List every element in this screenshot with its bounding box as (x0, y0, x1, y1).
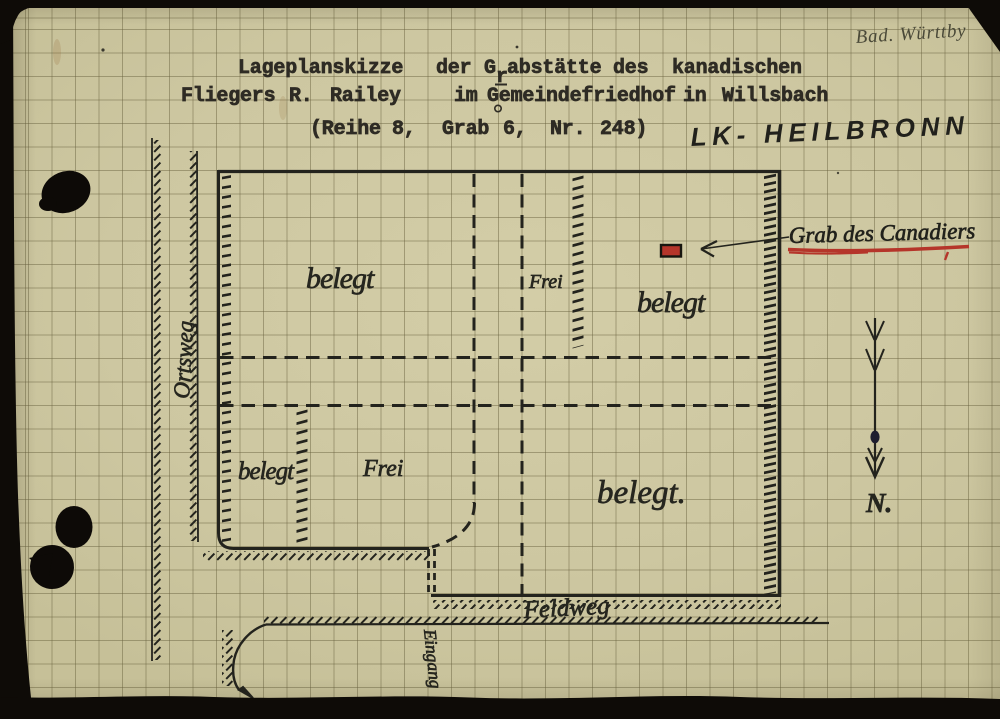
svg-text:Frei: Frei (362, 456, 403, 482)
svg-text:belegt: belegt (637, 286, 706, 319)
svg-text:LK- HEILBRONN: LK- HEILBRONN (690, 110, 970, 152)
svg-text:G: G (484, 57, 496, 80)
svg-text:Bad. Württby: Bad. Württby (855, 20, 967, 48)
svg-text:Grab des Canadiers: Grab des Canadiers (788, 218, 975, 248)
svg-text:Gemeindefriedhof: Gemeindefriedhof (487, 85, 676, 108)
svg-text:R.: R. (289, 85, 313, 108)
svg-text:belegt: belegt (238, 458, 295, 485)
svg-text:Lageplanskizze: Lageplanskizze (238, 57, 403, 80)
svg-text:belegt.: belegt. (597, 475, 686, 511)
svg-text:Willsbach: Willsbach (722, 85, 828, 108)
svg-text:(Reihe: (Reihe (310, 118, 381, 141)
svg-text:Ortsweg: Ortsweg (169, 320, 198, 399)
svg-text:6,: 6, (503, 118, 527, 141)
svg-text:des: des (613, 57, 648, 80)
svg-text:N.: N. (865, 488, 892, 518)
svg-text:abstätte: abstätte (507, 57, 602, 80)
svg-text:der: der (436, 57, 471, 80)
svg-text:Railey: Railey (330, 85, 401, 108)
svg-text:Grab: Grab (442, 118, 489, 141)
svg-text:Frei: Frei (528, 271, 563, 293)
svg-text:Feldweg: Feldweg (522, 593, 610, 625)
svg-text:im: im (454, 85, 478, 108)
svg-text:kanadischen: kanadischen (672, 57, 802, 80)
svg-text:Eingang: Eingang (420, 627, 446, 689)
svg-text:Nr.: Nr. (550, 118, 585, 141)
svg-text:belegt: belegt (306, 262, 375, 295)
svg-text:8,: 8, (392, 118, 416, 141)
svg-text:Fliegers: Fliegers (181, 85, 275, 108)
svg-text:248): 248) (600, 118, 647, 141)
svg-text:in: in (683, 85, 707, 108)
